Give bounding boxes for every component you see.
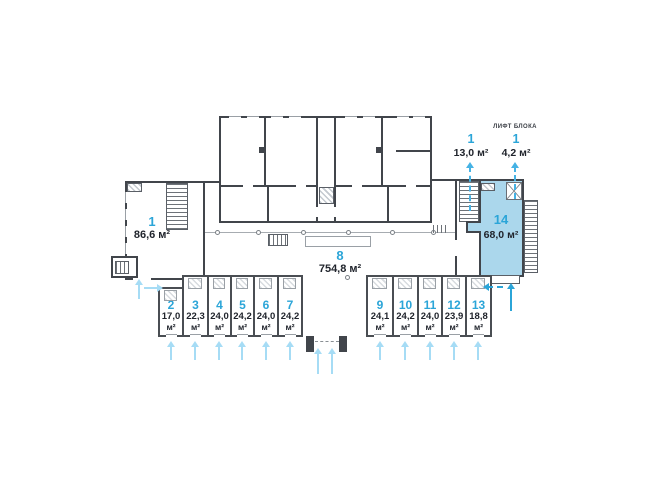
room-1-number[interactable]: 1	[135, 215, 169, 229]
window-marker	[345, 115, 357, 119]
window-marker	[374, 333, 386, 337]
unit-cell-5[interactable]: 5 24,2 м²	[230, 275, 255, 337]
column-marker	[256, 230, 261, 235]
selected-entry-dashed-arrow-icon	[483, 282, 503, 292]
unit-cell-4[interactable]: 4 24,0 м²	[207, 275, 232, 337]
entrance-arrow-icon	[190, 341, 200, 360]
window-marker	[124, 243, 128, 254]
hall-ramp	[305, 236, 371, 247]
wall-segment	[430, 179, 457, 181]
area-unit: м²	[507, 229, 518, 241]
unit-area-unit: м²	[474, 323, 483, 332]
column-marker	[345, 275, 350, 280]
door-opening	[334, 207, 336, 217]
column-marker	[215, 230, 220, 235]
window-marker	[363, 115, 375, 119]
area-value: 13,0	[454, 147, 474, 159]
wall-segment	[221, 185, 243, 187]
window-marker	[285, 333, 296, 337]
wall-segment	[316, 118, 318, 221]
room-8-number[interactable]: 8	[322, 249, 358, 263]
entrance-pillar	[339, 336, 347, 352]
window-marker	[449, 333, 460, 337]
shaft-block	[481, 183, 495, 191]
wall-segment	[253, 185, 296, 187]
entrance-arrow-icon	[166, 341, 176, 360]
column-marker	[390, 230, 395, 235]
column-block	[376, 147, 382, 153]
unit-entry-dashed-arrow-icon	[510, 162, 520, 199]
window-marker	[247, 115, 259, 119]
floor-plan: 2 17,0 м² 3 22,3 м² 4 24,0 м² 5 24,2 м² …	[0, 0, 653, 489]
bathroom-block	[423, 278, 436, 289]
bathroom-block	[236, 278, 248, 289]
window-marker	[397, 115, 409, 119]
column-marker	[346, 230, 351, 235]
window-marker	[261, 333, 272, 337]
unit-cell-7[interactable]: 7 24,2 м²	[277, 275, 303, 337]
window-marker	[237, 333, 248, 337]
window-marker	[124, 192, 128, 203]
wall-segment	[205, 181, 219, 183]
entrance-arrow-icon	[134, 279, 144, 299]
area-value: 754,8	[319, 263, 347, 275]
window-marker	[166, 333, 177, 337]
wall-segment	[334, 118, 336, 221]
wall-segment	[267, 187, 269, 221]
area-unit: м²	[477, 147, 488, 159]
bathroom-block	[259, 278, 272, 289]
column-block	[259, 147, 265, 153]
unit-entry-dashed-arrow-icon	[465, 162, 475, 211]
window-marker	[124, 209, 128, 220]
entrance-arrow-icon	[285, 341, 295, 360]
lift-block-label: ЛИФТ БЛОКА	[482, 124, 548, 130]
bathroom-block	[283, 278, 296, 289]
window-marker	[473, 333, 485, 337]
entrance-door	[315, 341, 339, 344]
unit-cell-9[interactable]: 9 24,1 м²	[366, 275, 394, 337]
bathroom-block	[398, 278, 412, 289]
porch-steps	[115, 261, 129, 274]
room-1-area: 86,6м²	[118, 230, 186, 242]
wall-segment	[387, 187, 389, 221]
room-14-number[interactable]: 14	[478, 213, 524, 227]
lift-unit-area: 4,2м²	[492, 148, 540, 159]
area-unit: м²	[519, 147, 530, 159]
entrance-arrow-icon	[449, 341, 459, 360]
entrance-arrow-icon	[144, 283, 163, 293]
window-marker	[271, 115, 283, 119]
entrance-arrow-icon	[237, 341, 247, 360]
stair-unit-area: 13,0м²	[445, 148, 497, 159]
entrance-arrow-icon	[261, 341, 271, 360]
area-unit: м²	[349, 263, 361, 275]
window-marker	[190, 333, 202, 337]
unit-area-unit: м²	[401, 323, 410, 332]
wall-segment	[336, 185, 352, 187]
bathroom-block	[372, 278, 387, 289]
floorplan-screenshot: 2 17,0 м² 3 22,3 м² 4 24,0 м² 5 24,2 м² …	[0, 0, 653, 489]
area-value: 4,2	[502, 147, 517, 159]
bathroom-core	[319, 187, 334, 204]
window-marker	[229, 115, 241, 119]
column-marker	[301, 230, 306, 235]
wall-segment	[416, 185, 430, 187]
window-marker	[289, 115, 301, 119]
unit-cell-3[interactable]: 3 22,3 м²	[182, 275, 209, 337]
unit-area-unit: м²	[425, 323, 434, 332]
unit-area-unit: м²	[215, 323, 224, 332]
entrance-arrow-icon	[375, 341, 385, 360]
unit-cell-6[interactable]: 6 24,0 м²	[253, 275, 279, 337]
room-14-area: 68,0м²	[470, 230, 532, 241]
staircase	[166, 183, 188, 230]
room-8-area: 754,8м²	[303, 264, 377, 276]
entrance-arrow-icon	[214, 341, 224, 360]
door-opening	[455, 240, 457, 256]
colonnade-line	[205, 232, 455, 233]
unit-area-unit: м²	[375, 323, 384, 332]
grate-block	[433, 225, 446, 233]
shaft-block	[127, 183, 142, 192]
entrance-arrow-icon	[400, 341, 410, 360]
bathroom-block	[164, 290, 177, 301]
unit-cell-10[interactable]: 10 24,2 м²	[392, 275, 419, 337]
window-marker	[400, 333, 412, 337]
window-marker	[214, 333, 225, 337]
unit-cell-12[interactable]: 12 23,9 м²	[441, 275, 467, 337]
entrance-arrow-icon	[473, 341, 483, 360]
area-value: 68,0	[484, 229, 504, 241]
unit-area-unit: м²	[238, 323, 247, 332]
stair-unit-number[interactable]: 1	[456, 133, 486, 146]
bathroom-block	[447, 278, 460, 289]
bathroom-block	[188, 278, 202, 289]
unit-area-unit: м²	[261, 323, 270, 332]
unit-cell-11[interactable]: 11 24,0 м²	[417, 275, 443, 337]
window-marker	[413, 115, 425, 119]
unit-area-unit: м²	[285, 323, 294, 332]
hall-stairs	[268, 234, 288, 246]
area-unit: м²	[158, 229, 170, 241]
area-value: 86,6	[134, 229, 155, 241]
window-marker	[425, 333, 436, 337]
entrance-arrow-icon	[425, 341, 435, 360]
bathroom-block	[213, 278, 225, 289]
unit-area-unit: м²	[191, 323, 200, 332]
unit-area-unit: м²	[166, 323, 175, 332]
entrance-arrow-icon	[327, 348, 337, 374]
upper-building-outline	[219, 116, 432, 223]
door-opening	[316, 207, 318, 217]
selected-entrance-arrow-icon	[506, 283, 516, 311]
wall-segment	[362, 185, 406, 187]
unit-cell-2[interactable]: 2 17,0 м²	[158, 287, 184, 337]
wall-segment	[306, 185, 316, 187]
entrance-arrow-icon	[313, 348, 323, 374]
unit-area-unit: м²	[449, 323, 458, 332]
wall-segment	[396, 150, 430, 152]
lift-unit-number[interactable]: 1	[501, 133, 531, 146]
